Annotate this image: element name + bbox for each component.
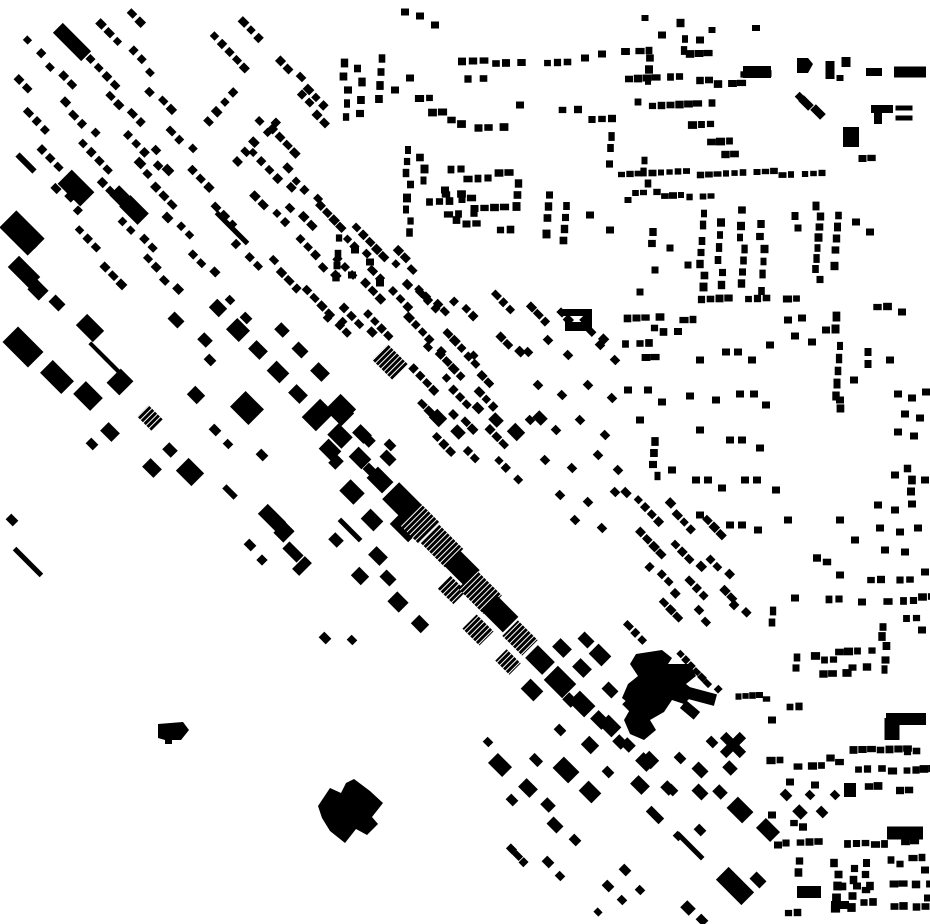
building: [874, 502, 882, 509]
building: [759, 270, 765, 279]
building: [894, 67, 926, 78]
building: [661, 193, 669, 199]
building: [344, 99, 350, 107]
building: [830, 656, 837, 662]
building: [699, 237, 706, 245]
building: [877, 747, 885, 754]
building: [736, 391, 744, 398]
building: [818, 762, 825, 769]
building: [922, 903, 930, 910]
building: [696, 77, 704, 84]
building: [912, 766, 919, 773]
building: [794, 909, 802, 916]
building: [815, 233, 823, 241]
building: [894, 429, 902, 436]
building: [574, 106, 582, 113]
building: [708, 193, 715, 198]
building: [618, 172, 625, 177]
building: [375, 95, 383, 103]
building: [714, 80, 722, 88]
building: [842, 57, 851, 67]
building: [715, 256, 722, 264]
building: [853, 840, 860, 847]
building: [742, 693, 748, 699]
building: [401, 9, 409, 16]
building: [756, 692, 763, 698]
building: [832, 325, 840, 334]
building: [646, 47, 653, 54]
building: [426, 198, 433, 205]
building: [866, 68, 882, 76]
building: [749, 692, 756, 699]
building: [686, 393, 694, 400]
building: [793, 295, 800, 301]
building: [738, 206, 746, 213]
building: [850, 746, 858, 754]
building: [719, 269, 726, 276]
building: [376, 280, 384, 287]
building: [880, 623, 887, 631]
building: [544, 214, 552, 222]
building: [645, 180, 652, 188]
building: [907, 488, 915, 496]
building: [598, 51, 606, 58]
building: [908, 395, 916, 402]
building: [640, 190, 647, 195]
building: [783, 296, 792, 303]
building: [883, 642, 891, 650]
building: [785, 910, 792, 916]
building: [497, 227, 504, 234]
building: [905, 787, 913, 794]
building: [707, 296, 715, 303]
building: [651, 437, 658, 446]
building: [698, 296, 705, 303]
building: [721, 151, 729, 158]
building: [888, 856, 895, 863]
building: [716, 295, 724, 303]
building: [896, 787, 904, 794]
building: [642, 157, 648, 165]
building: [864, 765, 871, 772]
building: [794, 763, 803, 769]
building: [899, 902, 907, 910]
building: [696, 427, 704, 434]
building: [731, 170, 737, 176]
building: [756, 233, 764, 240]
building: [813, 254, 819, 263]
building: [855, 766, 862, 772]
building: [826, 755, 834, 762]
building: [543, 230, 551, 239]
building: [904, 748, 911, 755]
building: [754, 527, 762, 534]
building: [716, 243, 722, 252]
building: [812, 265, 819, 273]
building: [896, 529, 904, 536]
building: [921, 569, 929, 576]
building: [564, 59, 572, 66]
building: [821, 657, 828, 664]
building: [678, 192, 684, 198]
building: [833, 235, 840, 243]
building: [354, 65, 361, 73]
building: [813, 554, 821, 561]
building: [475, 175, 482, 183]
building: [819, 170, 826, 176]
building: [649, 228, 656, 236]
building: [651, 74, 660, 80]
building: [806, 838, 814, 845]
building: [683, 168, 690, 174]
building: [635, 99, 642, 106]
building: [903, 615, 910, 622]
building: [736, 693, 742, 699]
building: [426, 95, 433, 101]
building: [448, 166, 455, 174]
building: [421, 177, 427, 185]
building: [407, 217, 413, 224]
building: [598, 116, 606, 122]
building: [546, 191, 553, 198]
building: [459, 197, 466, 203]
building: [428, 109, 437, 117]
building: [544, 60, 551, 66]
building: [685, 262, 692, 269]
building: [774, 842, 782, 849]
building: [858, 746, 866, 753]
building: [341, 59, 348, 68]
building: [686, 194, 692, 201]
building: [768, 717, 776, 724]
building: [862, 871, 869, 878]
building: [837, 75, 844, 81]
building: [898, 309, 906, 316]
building: [916, 415, 924, 422]
building: [826, 61, 835, 79]
building: [888, 768, 897, 775]
building: [457, 190, 466, 197]
building: [745, 296, 752, 302]
building: [748, 357, 756, 364]
building: [910, 597, 917, 604]
building: [795, 868, 803, 876]
building: [828, 670, 837, 677]
building: [770, 607, 776, 616]
building: [836, 572, 844, 579]
building: [833, 312, 841, 322]
building: [723, 170, 729, 176]
building: [913, 748, 921, 755]
building: [608, 132, 614, 141]
building: [868, 647, 875, 653]
building: [686, 50, 694, 58]
building: [726, 138, 733, 145]
building: [795, 225, 802, 232]
building: [588, 116, 595, 123]
building: [894, 391, 902, 398]
building: [819, 670, 827, 677]
building: [779, 172, 787, 178]
building: [438, 109, 447, 116]
building: [447, 117, 455, 124]
building: [458, 58, 466, 66]
building: [878, 765, 886, 772]
building: [606, 160, 613, 167]
building: [738, 522, 746, 529]
building: [810, 171, 817, 176]
building: [472, 220, 480, 226]
building: [860, 899, 867, 906]
building: [484, 124, 492, 131]
building: [633, 315, 641, 322]
building: [882, 665, 888, 673]
building: [851, 865, 858, 872]
building: [835, 759, 844, 765]
building: [867, 746, 876, 752]
building: [788, 171, 794, 178]
building: [674, 328, 682, 335]
building: [658, 399, 666, 406]
building: [849, 664, 857, 670]
building: [650, 354, 659, 360]
building: [837, 342, 843, 350]
building: [463, 176, 472, 183]
building: [741, 477, 749, 484]
building: [646, 54, 654, 61]
building: [752, 25, 760, 31]
building: [813, 202, 820, 211]
building: [436, 198, 443, 205]
building: [843, 127, 859, 147]
building: [896, 106, 913, 111]
building: [794, 654, 801, 662]
building: [738, 437, 746, 444]
building: [655, 472, 661, 480]
building: [407, 181, 414, 189]
building: [357, 96, 365, 104]
building: [441, 187, 449, 194]
building: [351, 247, 359, 254]
building: [913, 615, 920, 621]
building: [914, 525, 922, 532]
building: [787, 704, 794, 711]
building: [890, 881, 899, 888]
building: [675, 101, 683, 109]
building: [712, 397, 720, 404]
building: [761, 245, 769, 253]
building: [839, 883, 847, 891]
building: [366, 259, 374, 266]
building: [887, 827, 923, 840]
building: [830, 859, 838, 867]
building: [475, 124, 483, 131]
building: [815, 244, 821, 252]
building: [896, 577, 903, 584]
building: [791, 333, 799, 340]
building: [378, 68, 385, 76]
building: [632, 190, 639, 196]
building: [790, 820, 798, 826]
building: [878, 632, 885, 641]
building: [716, 138, 725, 146]
building: [728, 80, 737, 87]
building: [559, 107, 567, 113]
building: [480, 205, 488, 211]
building: [405, 146, 411, 154]
building: [836, 354, 842, 364]
building: [835, 649, 844, 656]
building: [562, 214, 569, 221]
building: [684, 101, 693, 108]
building: [707, 121, 714, 127]
building: [696, 357, 704, 364]
building: [817, 276, 824, 283]
building: [852, 219, 860, 226]
building: [869, 898, 877, 906]
building: [786, 779, 794, 786]
building: [823, 559, 831, 566]
building: [844, 840, 851, 848]
building: [850, 377, 858, 384]
building: [793, 664, 800, 671]
building: [648, 240, 656, 247]
building: [692, 477, 700, 484]
building: [696, 512, 704, 519]
building: [886, 746, 894, 754]
building: [696, 37, 704, 44]
building: [883, 303, 892, 310]
building: [896, 116, 913, 121]
building: [865, 360, 872, 368]
building: [901, 411, 909, 418]
building: [641, 314, 649, 320]
building: [912, 881, 920, 889]
building: [463, 221, 471, 228]
building: [920, 765, 929, 773]
building: [658, 170, 664, 176]
building: [844, 648, 853, 656]
building: [343, 113, 349, 121]
building: [882, 656, 890, 663]
building: [560, 237, 568, 245]
building: [624, 315, 632, 323]
building: [645, 339, 653, 347]
building: [876, 525, 884, 532]
building: [513, 202, 521, 211]
building: [724, 295, 732, 302]
building: [874, 782, 883, 790]
building: [563, 202, 570, 210]
building: [791, 595, 799, 602]
building: [403, 169, 410, 177]
building: [743, 66, 771, 78]
building: [700, 283, 708, 292]
building: [738, 279, 745, 287]
building: [831, 262, 839, 270]
building: [421, 165, 429, 174]
building: [797, 886, 821, 898]
building: [886, 357, 894, 364]
building: [643, 75, 652, 82]
building: [500, 123, 509, 131]
building: [703, 50, 712, 56]
building: [901, 549, 909, 556]
building: [726, 522, 734, 529]
building: [504, 169, 513, 176]
building: [514, 191, 522, 199]
building: [344, 86, 352, 93]
building: [862, 887, 870, 893]
building: [885, 718, 900, 740]
building: [836, 517, 844, 524]
building: [625, 197, 632, 203]
building: [866, 229, 874, 236]
building: [642, 354, 651, 361]
building: [924, 895, 930, 902]
building: [446, 197, 454, 205]
building: [695, 50, 704, 57]
building: [718, 281, 725, 289]
building: [858, 599, 866, 606]
building: [679, 317, 688, 323]
building: [831, 901, 849, 909]
building: [660, 328, 668, 336]
building: [334, 262, 341, 270]
building: [836, 397, 844, 404]
building: [741, 245, 747, 254]
building: [666, 169, 672, 174]
building: [637, 289, 644, 296]
building: [379, 54, 386, 62]
building: [900, 597, 907, 605]
building: [717, 231, 723, 239]
building: [926, 881, 930, 888]
building: [652, 267, 659, 274]
building: [649, 170, 657, 177]
building: [849, 892, 857, 900]
building: [608, 115, 616, 122]
building: [649, 103, 656, 109]
building: [737, 222, 745, 230]
building: [853, 883, 861, 890]
building: [740, 257, 747, 265]
building: [700, 221, 706, 230]
building: [756, 445, 764, 452]
building: [516, 102, 524, 109]
building: [698, 121, 705, 128]
building: [416, 154, 424, 162]
building: [709, 27, 716, 33]
building: [808, 762, 817, 769]
building: [835, 212, 842, 220]
building: [701, 210, 707, 218]
building: [656, 313, 665, 320]
building: [658, 102, 666, 109]
building: [734, 349, 742, 356]
building: [444, 211, 453, 217]
building: [867, 155, 875, 161]
building: [635, 171, 643, 177]
building: [718, 485, 726, 492]
building: [770, 168, 778, 174]
building: [777, 757, 784, 764]
building: [622, 340, 629, 347]
building: [667, 73, 674, 80]
building: [668, 467, 676, 474]
building: [837, 404, 845, 412]
building: [865, 783, 873, 790]
